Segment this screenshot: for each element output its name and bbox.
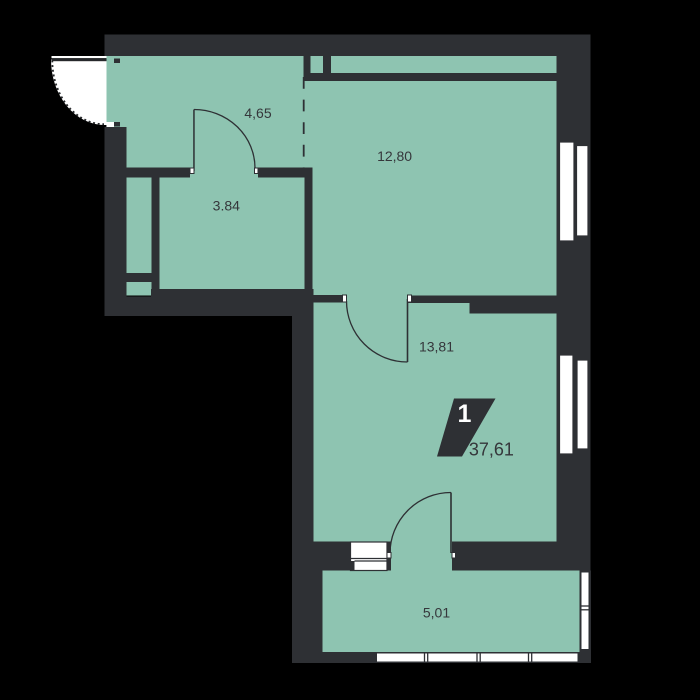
svg-text:1: 1: [458, 400, 472, 428]
svg-text:37,61: 37,61: [469, 440, 514, 460]
svg-text:5,01: 5,01: [423, 605, 450, 621]
svg-text:13,81: 13,81: [419, 339, 454, 355]
svg-text:12,80: 12,80: [377, 148, 412, 164]
svg-text:4,65: 4,65: [244, 105, 271, 121]
svg-text:3.84: 3.84: [213, 198, 240, 214]
